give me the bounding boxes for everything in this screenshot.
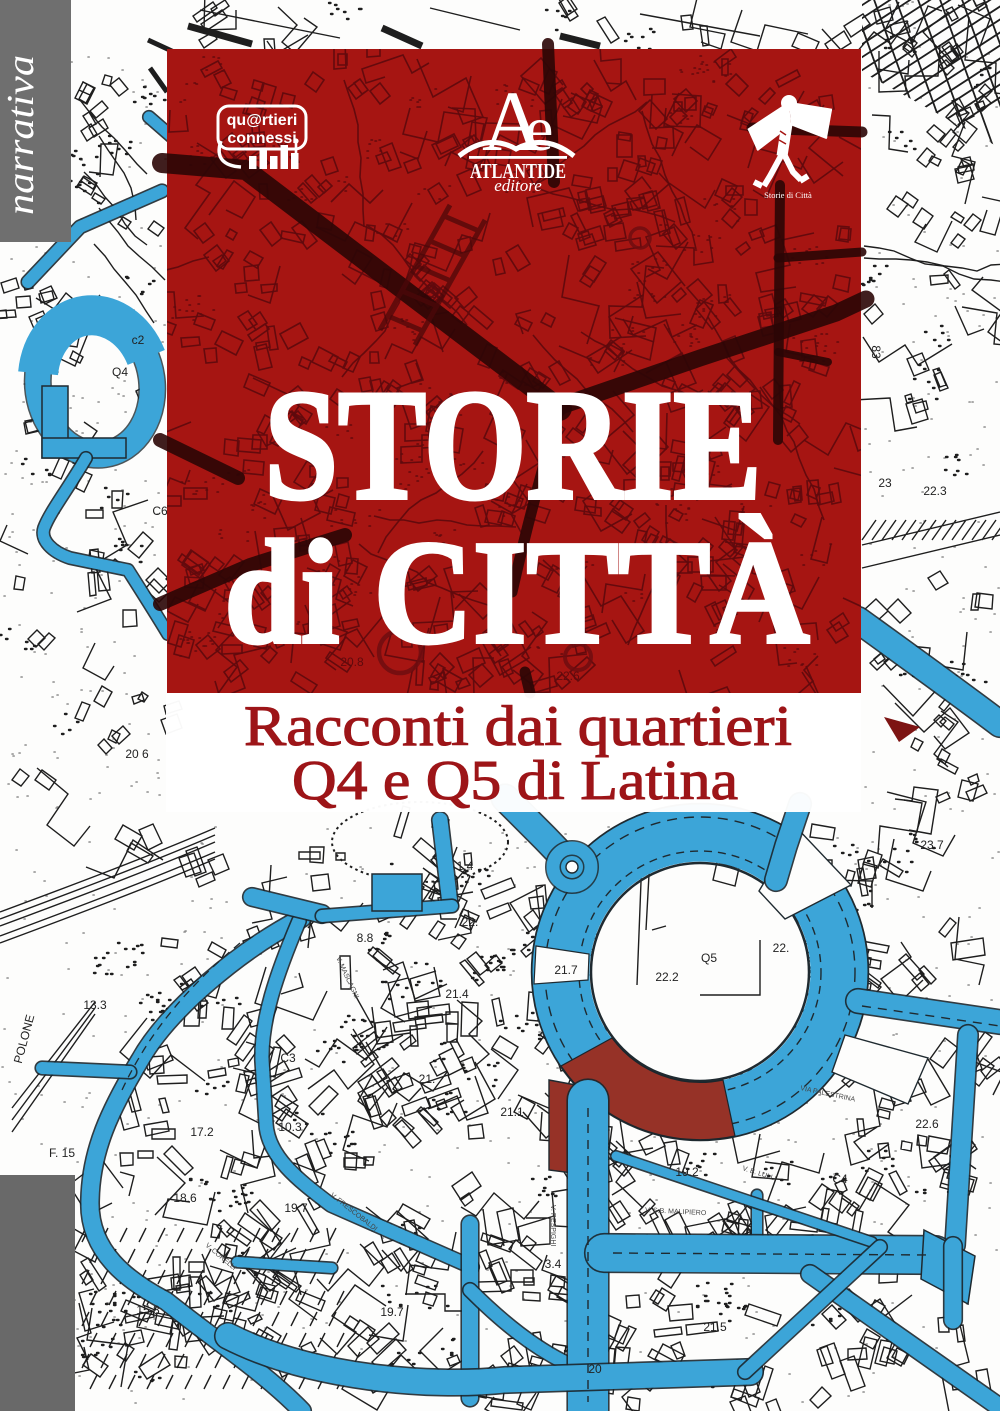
svg-text:22.6: 22.6 <box>915 1117 939 1131</box>
svg-text:C4: C4 <box>832 1172 848 1186</box>
svg-text:3.4: 3.4 <box>545 1257 562 1271</box>
svg-text:23: 23 <box>878 476 892 490</box>
svg-text:21.4: 21.4 <box>445 987 469 1001</box>
svg-text:22.3: 22.3 <box>923 484 947 498</box>
svg-text:1.4: 1.4 <box>457 859 474 873</box>
svg-text:c2: c2 <box>132 333 145 347</box>
svg-text:20 6: 20 6 <box>125 747 149 761</box>
svg-text:13.3: 13.3 <box>83 998 107 1012</box>
svg-text:e: e <box>525 93 553 164</box>
svg-text:Q5: Q5 <box>701 951 717 965</box>
svg-text:22.: 22. <box>462 915 479 929</box>
svg-text:21.: 21. <box>419 1072 436 1086</box>
svg-text:Q4 e Q5 di Latina: Q4 e Q5 di Latina <box>292 750 738 812</box>
svg-text:15.8: 15.8 <box>136 1303 160 1317</box>
svg-text:21.1: 21.1 <box>500 1105 524 1119</box>
svg-text:Racconti dai quartieri: Racconti dai quartieri <box>244 695 792 758</box>
svg-text:narrativa: narrativa <box>0 55 42 215</box>
svg-text:20: 20 <box>588 1362 602 1376</box>
svg-text:22.2: 22.2 <box>655 970 679 984</box>
svg-text:21.5: 21.5 <box>703 1320 727 1334</box>
svg-text:23.7: 23.7 <box>920 838 944 852</box>
svg-text:STORIE: STORIE <box>265 358 762 533</box>
svg-text:Q4: Q4 <box>112 365 128 379</box>
svg-text:22.: 22. <box>773 941 790 955</box>
svg-text:C6: C6 <box>152 504 168 518</box>
svg-text:19.2: 19.2 <box>675 1165 699 1179</box>
svg-text:10.3: 10.3 <box>278 1120 302 1134</box>
svg-text:qu@rtieri: qu@rtieri <box>227 112 298 129</box>
svg-text:Storie di Città: Storie di Città <box>764 190 812 200</box>
svg-text:19.7: 19.7 <box>284 1201 308 1215</box>
svg-text:editore: editore <box>494 176 542 195</box>
svg-text:19.7: 19.7 <box>380 1305 404 1319</box>
svg-text:8.8: 8.8 <box>357 931 374 945</box>
svg-text:F. 15: F. 15 <box>49 1146 75 1160</box>
svg-text:83: 83 <box>869 345 883 359</box>
svg-text:17.2: 17.2 <box>190 1125 214 1139</box>
svg-text:C3: C3 <box>280 1051 296 1065</box>
svg-text:18.6: 18.6 <box>173 1191 197 1205</box>
svg-text:di CITTÀ: di CITTÀ <box>225 511 810 675</box>
svg-text:V. RESPIGHI: V. RESPIGHI <box>549 1205 556 1246</box>
svg-text:connessi: connessi <box>227 130 296 147</box>
svg-text:21.7: 21.7 <box>554 963 578 977</box>
